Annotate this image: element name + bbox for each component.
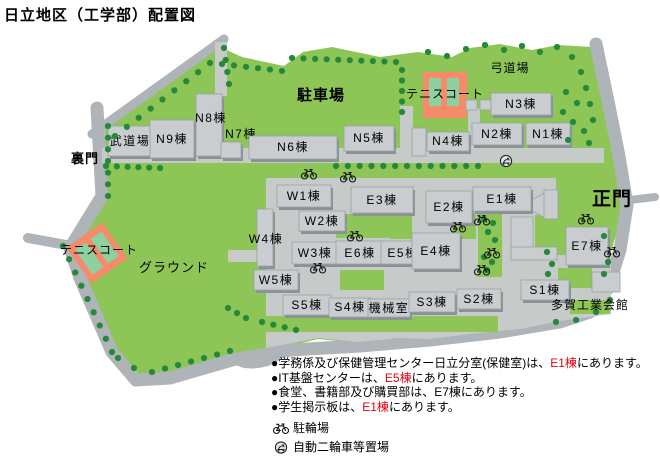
building-label: W5棟 [259, 272, 294, 287]
tree-dot [601, 233, 607, 239]
tree-dot [289, 55, 295, 61]
tree-dot [175, 362, 181, 368]
tree-dot [267, 67, 273, 73]
area-label-kyudo-hall: 弓道場 [490, 61, 529, 75]
scooter-icon [273, 440, 289, 455]
tree-dot [574, 100, 580, 106]
building-label: N9棟 [156, 131, 188, 146]
note-text: にあります。 [577, 356, 648, 370]
legend-label: 駐輪場 [293, 419, 329, 438]
building-n6: N6棟 [249, 136, 339, 162]
legend-label: 自動二輪車等置場 [293, 438, 389, 457]
tree-dot [404, 163, 410, 169]
tree-dot [581, 128, 587, 134]
building-w3: W3棟 [292, 242, 340, 267]
tree-dot [583, 85, 589, 91]
building-label: E1棟 [486, 191, 517, 206]
building-s2: S2棟 [457, 289, 503, 312]
note-line: ●食堂、書籍部及び購買部は、E7棟にあります。 [271, 385, 659, 400]
note-text: ●学務係及び保健管理センター日立分室(保健室)は、 [271, 356, 550, 370]
tree-dot [451, 163, 457, 169]
tree-dot [570, 119, 576, 125]
building-w5: W5棟 [254, 270, 300, 293]
tree-dot [392, 163, 398, 169]
tree-dot [463, 163, 469, 169]
tree-dot [569, 54, 575, 60]
tree-dot [482, 42, 488, 48]
building-label: 機械室 [369, 300, 410, 315]
building-s3: S3棟 [409, 292, 457, 315]
tree-dot [601, 271, 607, 277]
tree-dot [399, 98, 405, 104]
tree-dot [243, 315, 249, 321]
area-label-main-gate: 正門 [592, 188, 632, 210]
building-kikai: 機械室 [368, 299, 412, 320]
tree-dot [66, 256, 72, 262]
tree-dot [105, 135, 111, 141]
tree-dot [370, 58, 376, 64]
tree-dot [333, 163, 339, 169]
map-notes: ●学務係及び保健管理センター日立分室(保健室)は、E1棟にあります。●IT基盤セ… [271, 356, 659, 414]
building-e2: E2棟 [426, 191, 474, 226]
tree-dot [146, 165, 152, 171]
building-label: E6棟 [344, 245, 375, 260]
tree-dot [399, 88, 405, 94]
tree-dot [231, 62, 237, 68]
tree-dot [545, 271, 551, 277]
tree-dot [188, 358, 194, 364]
tree-dot [109, 349, 115, 355]
tree-dot [368, 163, 374, 169]
legend-row: 駐輪場 [273, 419, 389, 438]
tree-dot [578, 69, 584, 75]
building-s5: S5棟 [283, 295, 333, 318]
building-s4: S4棟 [329, 298, 373, 320]
building-label: E4棟 [420, 243, 451, 258]
tree-dot [393, 59, 399, 65]
building-label: E2棟 [433, 199, 464, 214]
note-line: ●学務係及び保健管理センター日立分室(保健室)は、E1棟にあります。 [271, 356, 659, 371]
tree-dot [345, 163, 351, 169]
tree-dot [159, 96, 165, 102]
building-label: N8棟 [195, 110, 227, 125]
building-n9: N9棟 [150, 120, 196, 161]
building-label: S2棟 [463, 291, 494, 306]
tree-dot [399, 67, 405, 73]
tree-dot [489, 259, 495, 265]
tree-dot [425, 49, 431, 55]
tree-dot [72, 269, 78, 275]
area-label-ground: グラウンド [139, 260, 209, 275]
tree-dot [293, 327, 299, 333]
tree-dot [335, 57, 341, 63]
tree-dot [428, 163, 434, 169]
scooter-icon [500, 155, 511, 166]
building-e1: E1棟 [473, 187, 533, 214]
area-label-parking-lot: 駐車場 [297, 86, 345, 104]
tree-dot [149, 369, 155, 375]
tree-dot [475, 163, 481, 169]
tree-dot [358, 58, 364, 64]
note-highlight: E5棟 [385, 371, 412, 385]
tree-dot [590, 117, 596, 123]
note-text: にあります。 [412, 371, 483, 385]
note-highlight: E1棟 [362, 400, 389, 414]
tree-dot [105, 170, 111, 176]
building-w2: W2棟 [299, 211, 347, 234]
tree-dot [554, 44, 560, 50]
map-legend: 駐輪場自動二輪車等置場 [273, 419, 389, 457]
building-n1: N1棟 [526, 123, 572, 148]
tree-dot [162, 365, 168, 371]
tree-dot [84, 296, 90, 302]
tree-dot [114, 163, 120, 169]
building-n5: N5棟 [344, 126, 396, 154]
tree-dot [324, 56, 330, 62]
tree-dot [490, 220, 496, 226]
tree-dot [519, 43, 525, 49]
note-line: ●IT基盤センターは、E5棟にあります。 [271, 371, 659, 386]
tree-dot [492, 237, 498, 243]
tree-dot [105, 158, 111, 164]
note-text: ●IT基盤センターは、 [271, 371, 385, 385]
tree-dot [347, 57, 353, 63]
tree-dot [105, 123, 111, 129]
note-line: ●学生掲示板は、E1棟にあります。 [271, 400, 659, 415]
tree-dot [255, 65, 261, 71]
tree-dot [105, 181, 111, 187]
tree-dot [312, 56, 318, 62]
tree-dot [226, 81, 232, 87]
tree-dot [439, 163, 445, 169]
building-label: S4棟 [334, 299, 365, 314]
bicycle-icon [273, 421, 289, 436]
tree-dot [279, 68, 285, 74]
tree-dot [171, 87, 177, 93]
tree-dot [444, 53, 450, 59]
building-label: N1棟 [532, 126, 564, 141]
tree-dot [563, 89, 569, 95]
tree-dot [573, 317, 579, 323]
tree-dot [586, 140, 592, 146]
note-highlight: E1棟 [550, 356, 577, 370]
tree-dot [282, 324, 288, 330]
building-label: N4棟 [432, 133, 464, 148]
tree-dot [399, 77, 405, 83]
note-text: ●学生掲示板は、 [271, 400, 362, 414]
tree-dot [112, 133, 118, 139]
legend-row: 自動二輪車等置場 [273, 438, 389, 457]
building-n2: N2棟 [472, 123, 524, 148]
tree-dot [381, 58, 387, 64]
building-label: N5棟 [353, 130, 385, 145]
area-label-back-gate: 裏門 [70, 151, 99, 166]
tree-dot [565, 137, 571, 143]
tree-dot [148, 106, 154, 112]
tree-dot [227, 348, 233, 354]
area-label-tennis-court-west: テニスコート [60, 243, 138, 257]
tree-dot [207, 60, 213, 66]
tree-dot [399, 109, 405, 115]
building-label: W2棟 [305, 213, 340, 228]
building-label: N2棟 [481, 126, 513, 141]
tree-dot [221, 45, 227, 51]
tree-dot [124, 124, 130, 130]
tree-dot [549, 261, 555, 267]
building-label: N3棟 [505, 96, 537, 111]
tree-dot [234, 310, 240, 316]
building-label: W4棟 [249, 231, 284, 246]
tree-dot [544, 249, 550, 255]
building-label: S5棟 [291, 297, 322, 312]
tree-dot [225, 305, 231, 311]
tree-dot [270, 322, 276, 328]
building-n4: N4棟 [427, 132, 471, 154]
tree-dot [103, 336, 109, 342]
tree-dot [115, 355, 121, 361]
tree-dot [587, 101, 593, 107]
building-e6: E6棟 [336, 241, 386, 267]
tree-dot [485, 229, 491, 235]
building-label: W3棟 [298, 245, 333, 260]
tree-dot [219, 61, 225, 67]
tree-dot [501, 47, 507, 53]
note-text: にあります。 [389, 400, 460, 414]
tree-dot [78, 283, 84, 289]
building-w1: W1棟 [277, 185, 333, 210]
building-budokan: 武道場 [108, 126, 154, 159]
building-label: N6棟 [277, 139, 309, 154]
tree-dot [97, 322, 103, 328]
building-e4: E4棟 [412, 233, 462, 272]
tree-dot [463, 46, 469, 52]
building-label: S1棟 [529, 282, 560, 297]
tree-dot [259, 319, 265, 325]
tree-dot [136, 115, 142, 121]
tree-dot [243, 64, 249, 70]
tree-dot [105, 146, 111, 152]
building-label: W1棟 [287, 188, 322, 203]
tree-dot [300, 55, 306, 61]
building-label: E7棟 [571, 238, 602, 253]
tree-dot [416, 163, 422, 169]
area-label-taga-kogyo-hall: 多賀工業会館 [551, 297, 629, 312]
building-n3: N3棟 [491, 93, 553, 118]
tree-dot [125, 164, 131, 170]
building-label: E3棟 [366, 192, 397, 207]
tree-dot [224, 69, 230, 75]
tree-dot [560, 109, 566, 115]
building-e3: E3棟 [351, 187, 415, 216]
tree-dot [183, 78, 189, 84]
tree-dot [214, 351, 220, 357]
tree-dot [157, 165, 163, 171]
tree-dot [537, 49, 543, 55]
tree-dot [357, 163, 363, 169]
tree-dot [91, 309, 97, 315]
tree-dot [131, 365, 137, 371]
note-text: ●食堂、書籍部及び購買部は、E7棟にあります。 [271, 385, 532, 399]
page: 日立地区（工学部）配置図 [0, 0, 660, 470]
area-label-tennis-court-north: テニスコート [406, 87, 484, 101]
tree-dot [553, 319, 559, 325]
tree-dot [135, 164, 141, 170]
building-label: S3棟 [416, 294, 447, 309]
tree-dot [195, 69, 201, 75]
tree-dot [201, 355, 207, 361]
tree-dot [380, 163, 386, 169]
tree-dot [605, 259, 611, 265]
tree-dot [105, 193, 111, 199]
